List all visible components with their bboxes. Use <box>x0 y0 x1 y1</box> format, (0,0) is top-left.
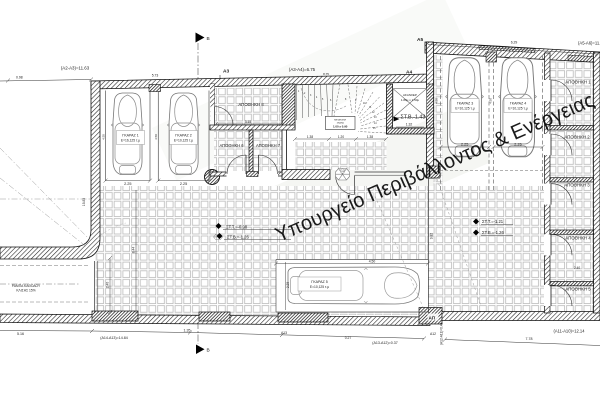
svg-text:ΓΚΑΡΑΖ 1: ΓΚΑΡΑΖ 1 <box>122 134 139 138</box>
svg-text:ΓΚΑΡΑΖ 2: ΓΚΑΡΑΖ 2 <box>175 134 192 138</box>
svg-text:Α4: Α4 <box>406 70 412 76</box>
svg-text:ΡΑΜΠΑ ΚΑΘΟΔΟΥ: ΡΑΜΠΑ ΚΑΘΟΔΟΥ <box>12 284 41 288</box>
svg-text:Ε=10,125 τ.μ: Ε=10,125 τ.μ <box>455 107 474 111</box>
svg-text:Α13: Α13 <box>281 331 287 335</box>
svg-text:8.75: 8.75 <box>323 72 329 76</box>
svg-text:Β: Β <box>207 36 210 42</box>
svg-text:ΣΤ.Β.=-1.26: ΣΤ.Β.=-1.26 <box>482 230 504 235</box>
svg-text:ΚΛΙΣΗΣ 15%: ΚΛΙΣΗΣ 15% <box>16 289 35 293</box>
svg-text:1.35: 1.35 <box>184 329 191 333</box>
svg-text:1.38: 1.38 <box>307 135 313 139</box>
svg-text:ΑΠΟΘΗΚΗ 5: ΑΠΟΘΗΚΗ 5 <box>565 287 591 292</box>
svg-text:1.38: 1.38 <box>341 171 345 173</box>
svg-text:4.50: 4.50 <box>154 134 158 140</box>
svg-text:2.25: 2.25 <box>180 182 187 186</box>
svg-text:ΓΚΑΡΑΖ 3: ΓΚΑΡΑΖ 3 <box>457 102 474 106</box>
svg-text:(Α3-Α4)=6.75: (Α3-Α4)=6.75 <box>289 67 316 72</box>
svg-text:ΣΤ.Β.-1.43: ΣΤ.Β.-1.43 <box>401 115 426 121</box>
svg-text:1.38: 1.38 <box>367 135 373 139</box>
svg-text:Α5: Α5 <box>417 37 423 43</box>
svg-text:ΜΕΤΑΛΛΙΚΗ: ΜΕΤΑΛΛΙΚΗ <box>334 119 346 122</box>
svg-text:ΑΠΟΘΗΚΗ 2: ΑΠΟΘΗΚΗ 2 <box>564 135 590 140</box>
svg-text:ΑΠ: ΑΠ <box>429 316 436 321</box>
svg-text:2.40: 2.40 <box>574 266 580 270</box>
svg-text:0.98: 0.98 <box>16 76 23 80</box>
svg-text:ΣΤ.Τ.=-1.21: ΣΤ.Τ.=-1.21 <box>482 219 504 224</box>
svg-text:ΑΠΟΘΗΚΗ 6: ΑΠΟΘΗΚΗ 6 <box>219 143 244 148</box>
svg-text:5.73: 5.73 <box>152 74 159 78</box>
svg-text:Ε=10,125 τ.μ: Ε=10,125 τ.μ <box>174 139 193 143</box>
svg-text:8.44: 8.44 <box>132 247 136 254</box>
svg-text:(Α2-Α3)=11.63: (Α2-Α3)=11.63 <box>61 66 90 71</box>
svg-text:3.15: 3.15 <box>245 120 252 124</box>
svg-text:ΑΠΟΘΗΚΗ 1: ΑΠΟΘΗΚΗ 1 <box>565 80 591 85</box>
svg-text:1.00 x 0.90: 1.00 x 0.90 <box>333 125 348 129</box>
svg-text:Ε=10,125 τ.μ: Ε=10,125 τ.μ <box>310 285 329 289</box>
svg-text:4.50: 4.50 <box>435 98 439 104</box>
svg-text:4.50: 4.50 <box>489 98 493 104</box>
svg-text:19.83: 19.83 <box>82 198 86 206</box>
svg-text:ΑΣΑΝΣΕΡ: ΑΣΑΝΣΕΡ <box>403 93 417 97</box>
svg-text:Β: Β <box>207 348 210 354</box>
svg-text:0.27: 0.27 <box>345 336 352 340</box>
svg-text:1.32: 1.32 <box>406 123 413 127</box>
svg-text:5.16: 5.16 <box>17 332 24 336</box>
svg-text:ΑΠΟΘΗΚΗ 4: ΑΠΟΘΗΚΗ 4 <box>565 236 591 241</box>
svg-text:ΑΠΟΘΗΚΗ 3: ΑΠΟΘΗΚΗ 3 <box>564 183 590 188</box>
svg-text:2.25: 2.25 <box>286 282 290 288</box>
svg-text:(Α12-Α11)=0.45: (Α12-Α11)=0.45 <box>440 322 444 345</box>
svg-text:Ε=10,125 τ.μ: Ε=10,125 τ.μ <box>508 107 527 111</box>
svg-text:4.50: 4.50 <box>369 260 376 264</box>
svg-text:1.16: 1.16 <box>427 59 431 65</box>
svg-text:(Α5-Α6)=11.16: (Α5-Α6)=11.16 <box>578 41 600 46</box>
svg-text:ΑΠΟΘΗΚΗ 7: ΑΠΟΘΗΚΗ 7 <box>256 143 281 148</box>
svg-text:ΓΚΑΡΑΖ 4: ΓΚΑΡΑΖ 4 <box>510 102 527 106</box>
svg-text:(Α14-Α13)=14.84: (Α14-Α13)=14.84 <box>100 336 127 340</box>
svg-text:(Α11-Α10)=12.14: (Α11-Α10)=12.14 <box>554 329 586 334</box>
svg-text:1.80μ x 1.50μ: 1.80μ x 1.50μ <box>401 98 420 102</box>
svg-text:Α3: Α3 <box>223 69 229 75</box>
svg-text:ΣΤ.Τ.=-0.98: ΣΤ.Τ.=-0.98 <box>226 224 248 229</box>
svg-text:(Α13-Α12)=0.37: (Α13-Α12)=0.37 <box>372 341 397 345</box>
svg-text:2.40: 2.40 <box>106 282 110 289</box>
svg-text:6.29: 6.29 <box>511 41 518 45</box>
svg-text:ΓΚΑΡΑΖ 5: ΓΚΑΡΑΖ 5 <box>311 280 328 284</box>
svg-text:ΑΠΟΘΗΚΗ 8: ΑΠΟΘΗΚΗ 8 <box>238 102 264 107</box>
svg-text:ΣΤ.Β.=-1.26: ΣΤ.Β.=-1.26 <box>227 234 249 239</box>
svg-text:Α12: Α12 <box>430 332 436 336</box>
svg-text:9.82: 9.82 <box>430 233 434 240</box>
svg-text:7.78: 7.78 <box>526 337 533 341</box>
svg-text:2.25: 2.25 <box>124 182 131 186</box>
svg-text:Ε=16,125 τ.μ: Ε=16,125 τ.μ <box>121 139 140 143</box>
svg-text:4.50: 4.50 <box>102 134 106 140</box>
svg-text:1.20: 1.20 <box>338 135 344 139</box>
